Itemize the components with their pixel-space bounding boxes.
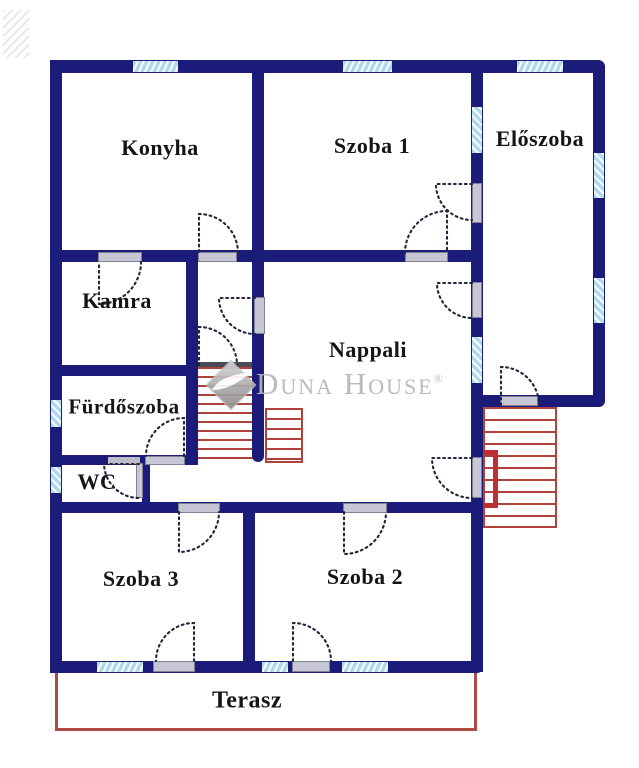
room-label-nappali: Nappali xyxy=(329,337,407,363)
door-arcs-layer xyxy=(0,0,639,768)
room-label-szoba3: Szoba 3 xyxy=(103,566,179,592)
door-arc-furdoszoba xyxy=(146,418,184,456)
room-label-eloszoba: Előszoba xyxy=(496,126,584,152)
room-label-szoba2: Szoba 2 xyxy=(327,564,403,590)
door-arc-nappali-landing xyxy=(432,458,472,498)
room-label-kamra: Kamra xyxy=(82,288,152,314)
door-arc-szoba1-eloszoba xyxy=(436,184,472,220)
room-label-furdoszoba: Fürdőszoba xyxy=(68,395,179,420)
door-arc-stairs xyxy=(199,327,237,365)
room-label-konyha: Konyha xyxy=(121,135,199,161)
door-arc-hall-nappali xyxy=(219,298,255,334)
door-arc-szoba3-terasz xyxy=(156,623,194,661)
door-arc-szoba2-terasz xyxy=(293,623,331,661)
door-arc-eloszoba-landing xyxy=(501,367,539,405)
door-arc-szoba1-nappali xyxy=(405,211,447,253)
room-label-terasz: Terasz xyxy=(212,688,282,715)
door-arc-konyha-hall xyxy=(199,214,238,253)
room-label-wc: WC xyxy=(78,469,117,495)
door-arc-szoba3-north xyxy=(179,512,219,552)
room-label-szoba1: Szoba 1 xyxy=(334,133,410,159)
door-arc-nappali-eloszoba xyxy=(437,283,472,318)
floor-plan: Konyha Szoba 1 Előszoba Kamra Nappali Fü… xyxy=(0,0,639,768)
door-arc-szoba2-north xyxy=(344,512,386,554)
